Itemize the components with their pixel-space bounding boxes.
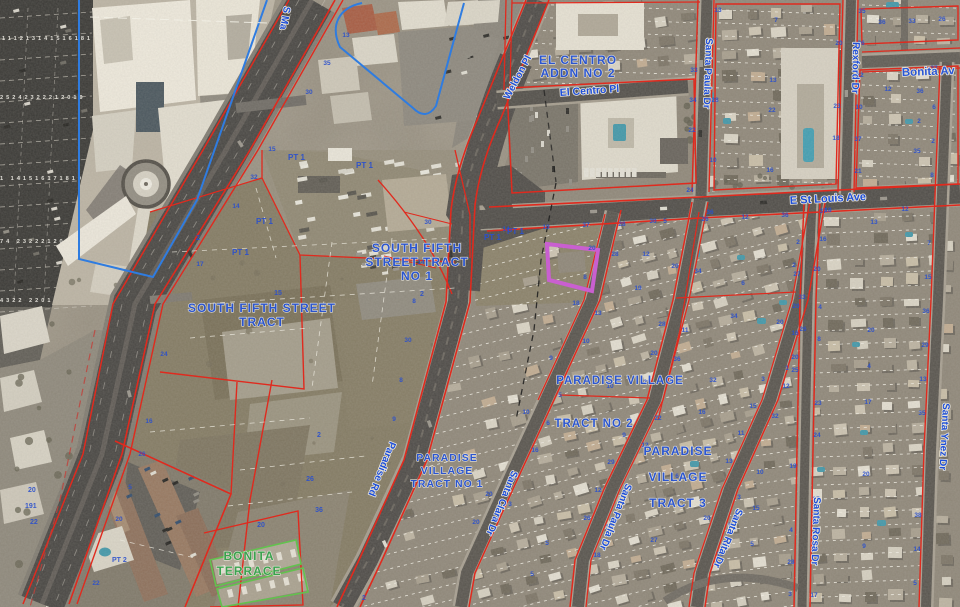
- svg-text:17: 17: [864, 399, 872, 406]
- svg-text:20: 20: [257, 522, 265, 529]
- svg-text:8: 8: [399, 377, 403, 384]
- svg-text:30: 30: [424, 219, 432, 226]
- svg-text:20: 20: [485, 491, 493, 498]
- svg-text:10: 10: [522, 409, 530, 416]
- svg-text:30: 30: [404, 337, 412, 344]
- svg-text:5: 5: [530, 571, 534, 578]
- svg-text:29: 29: [607, 459, 615, 466]
- svg-text:16: 16: [145, 418, 153, 425]
- svg-text:PT 2: PT 2: [112, 557, 127, 564]
- svg-text:15: 15: [752, 505, 760, 512]
- svg-text:SOUTH FIFTH: SOUTH FIFTH: [372, 241, 462, 255]
- svg-text:12: 12: [901, 206, 909, 213]
- svg-text:PT 1: PT 1: [288, 153, 305, 162]
- svg-text:38: 38: [914, 512, 922, 519]
- svg-text:5: 5: [545, 540, 549, 547]
- svg-text:34: 34: [694, 268, 702, 275]
- svg-text:28: 28: [658, 321, 666, 328]
- svg-text:12: 12: [642, 251, 650, 258]
- svg-text:2: 2: [420, 291, 424, 298]
- svg-text:37: 37: [854, 136, 862, 143]
- svg-text:9: 9: [862, 543, 866, 550]
- svg-text:20: 20: [791, 354, 799, 361]
- svg-text:36: 36: [315, 507, 323, 514]
- svg-text:37: 37: [582, 222, 590, 229]
- svg-text:9: 9: [549, 355, 553, 362]
- svg-text:PT 1: PT 1: [256, 217, 273, 226]
- svg-text:Rexford Dr: Rexford Dr: [849, 42, 861, 94]
- svg-text:25: 25: [791, 367, 799, 374]
- svg-text:22: 22: [92, 580, 100, 587]
- svg-text:10: 10: [855, 104, 863, 111]
- svg-text:20: 20: [472, 519, 480, 526]
- svg-text:17: 17: [810, 592, 818, 599]
- svg-text:9: 9: [392, 416, 396, 423]
- svg-text:5: 5: [128, 484, 132, 491]
- svg-text:20: 20: [813, 266, 821, 273]
- svg-text:20: 20: [588, 245, 596, 252]
- svg-text:8: 8: [583, 274, 587, 281]
- svg-text:24: 24: [813, 432, 821, 439]
- svg-text:15: 15: [924, 274, 932, 281]
- svg-text:BONITA: BONITA: [223, 549, 274, 563]
- svg-text:29: 29: [921, 342, 929, 349]
- svg-text:18: 18: [572, 300, 580, 307]
- svg-text:28: 28: [611, 251, 619, 258]
- svg-text:2: 2: [317, 432, 321, 439]
- svg-text:10: 10: [709, 157, 717, 164]
- svg-text:STREET TRACT: STREET TRACT: [365, 255, 468, 269]
- svg-text:20: 20: [28, 487, 36, 494]
- svg-text:26: 26: [583, 515, 591, 522]
- svg-text:26: 26: [701, 216, 709, 223]
- svg-text:7: 7: [927, 240, 931, 247]
- svg-text:SOUTH FIFTH STREET: SOUTH FIFTH STREET: [188, 301, 336, 315]
- svg-text:ADDN NO 2: ADDN NO 2: [540, 66, 615, 80]
- svg-text:2: 2: [792, 262, 796, 269]
- svg-text:22: 22: [768, 107, 776, 114]
- svg-text:16: 16: [819, 236, 827, 243]
- svg-text:12: 12: [741, 214, 749, 221]
- svg-text:26: 26: [138, 451, 146, 458]
- svg-text:26: 26: [306, 476, 314, 483]
- svg-text:17: 17: [196, 261, 204, 268]
- svg-text:34: 34: [730, 313, 738, 320]
- svg-text:2: 2: [796, 239, 800, 246]
- svg-text:22: 22: [654, 415, 662, 422]
- svg-text:3: 3: [761, 376, 765, 383]
- svg-text:12: 12: [594, 487, 602, 494]
- svg-text:15: 15: [749, 403, 757, 410]
- svg-text:13: 13: [594, 310, 602, 317]
- svg-text:22: 22: [688, 127, 696, 134]
- svg-text:36: 36: [922, 308, 930, 315]
- svg-text:11: 11: [682, 327, 689, 334]
- svg-text:28: 28: [787, 559, 795, 566]
- svg-text:20: 20: [671, 263, 679, 270]
- svg-text:12: 12: [782, 383, 790, 390]
- svg-text:21: 21: [854, 168, 862, 175]
- svg-text:18: 18: [832, 135, 840, 142]
- svg-text:37: 37: [819, 208, 827, 215]
- svg-text:20: 20: [776, 319, 784, 326]
- svg-text:20: 20: [115, 516, 123, 523]
- svg-text:12: 12: [884, 86, 892, 93]
- svg-text:19: 19: [634, 285, 642, 292]
- svg-text:TRACT 3: TRACT 3: [649, 496, 707, 510]
- svg-text:VILLAGE: VILLAGE: [421, 465, 474, 477]
- svg-text:26: 26: [799, 326, 807, 333]
- svg-text:6: 6: [741, 280, 745, 287]
- svg-text:35: 35: [918, 410, 926, 417]
- svg-text:33: 33: [798, 294, 806, 301]
- svg-text:20: 20: [792, 303, 800, 310]
- svg-text:9: 9: [622, 432, 626, 439]
- svg-text:13: 13: [919, 376, 927, 383]
- svg-text:30: 30: [305, 89, 313, 96]
- svg-text:PT 1: PT 1: [507, 227, 524, 236]
- svg-text:27: 27: [650, 537, 658, 544]
- svg-text:3: 3: [788, 591, 792, 598]
- svg-text:5: 5: [913, 580, 917, 587]
- svg-text:13: 13: [342, 32, 350, 39]
- svg-text:15: 15: [268, 146, 276, 153]
- svg-text:23: 23: [814, 400, 822, 407]
- svg-text:7: 7: [774, 17, 778, 24]
- svg-text:TRACT NO 1: TRACT NO 1: [411, 478, 484, 490]
- svg-text:35: 35: [323, 60, 331, 67]
- svg-text:16: 16: [531, 447, 539, 454]
- svg-text:36: 36: [916, 88, 924, 95]
- svg-text:36: 36: [673, 356, 681, 363]
- svg-text:PARADISE: PARADISE: [643, 444, 712, 458]
- svg-text:33: 33: [690, 67, 698, 74]
- svg-text:32: 32: [250, 174, 258, 181]
- svg-text:2: 2: [917, 118, 921, 125]
- svg-text:TRACT: TRACT: [239, 315, 285, 329]
- svg-text:10: 10: [582, 338, 590, 345]
- svg-text:11: 11: [738, 430, 745, 437]
- svg-text:35: 35: [913, 148, 921, 155]
- svg-text:24: 24: [160, 351, 168, 358]
- svg-text:PT 1: PT 1: [356, 161, 373, 170]
- svg-text:5: 5: [558, 392, 562, 399]
- svg-text:13: 13: [769, 77, 777, 84]
- svg-text:PT 1: PT 1: [232, 248, 249, 257]
- svg-text:20: 20: [703, 515, 711, 522]
- svg-text:4: 4: [818, 304, 822, 311]
- svg-text:10: 10: [756, 469, 764, 476]
- svg-text:36: 36: [781, 212, 789, 219]
- svg-text:20: 20: [862, 471, 870, 478]
- svg-text:8: 8: [412, 298, 416, 305]
- svg-text:15: 15: [274, 290, 282, 297]
- svg-text:TERRACE: TERRACE: [216, 564, 281, 578]
- svg-text:VILLAGE: VILLAGE: [648, 470, 707, 484]
- svg-text:PARADISE VILLAGE: PARADISE VILLAGE: [556, 375, 684, 387]
- svg-text:28: 28: [618, 221, 626, 228]
- svg-text:PARADISE: PARADISE: [416, 452, 477, 464]
- svg-text:6: 6: [546, 420, 550, 427]
- svg-text:16: 16: [698, 409, 706, 416]
- svg-text:6: 6: [932, 104, 936, 111]
- svg-text:2: 2: [196, 235, 200, 242]
- svg-text:20: 20: [867, 327, 875, 334]
- svg-text:34: 34: [689, 97, 697, 104]
- svg-text:13: 13: [870, 219, 878, 226]
- svg-text:8: 8: [817, 336, 821, 343]
- svg-text:36: 36: [878, 19, 886, 26]
- svg-text:20: 20: [650, 350, 658, 357]
- svg-text:PT 1: PT 1: [484, 233, 501, 242]
- svg-text:26: 26: [938, 16, 946, 23]
- svg-text:TRACT NO 2: TRACT NO 2: [555, 418, 634, 430]
- svg-text:19: 19: [542, 224, 550, 231]
- svg-text:2: 2: [931, 138, 935, 145]
- svg-text:4: 4: [867, 363, 871, 370]
- svg-text:191: 191: [25, 503, 37, 510]
- svg-text:36: 36: [706, 209, 714, 216]
- svg-text:33: 33: [908, 18, 916, 25]
- svg-text:14: 14: [913, 546, 921, 553]
- svg-text:14: 14: [232, 203, 240, 210]
- svg-text:4: 4: [789, 527, 793, 534]
- svg-text:2: 2: [362, 595, 366, 602]
- svg-text:3: 3: [508, 501, 512, 508]
- svg-text:NO 1: NO 1: [401, 269, 433, 283]
- svg-text:24: 24: [686, 187, 694, 194]
- svg-text:18: 18: [593, 552, 601, 559]
- svg-text:13: 13: [725, 458, 733, 465]
- svg-text:32: 32: [771, 413, 779, 420]
- svg-text:35: 35: [858, 8, 866, 15]
- svg-text:16: 16: [791, 330, 799, 337]
- svg-text:32: 32: [709, 377, 717, 384]
- svg-text:23: 23: [833, 103, 841, 110]
- svg-text:22: 22: [30, 519, 38, 526]
- svg-text:5: 5: [663, 218, 667, 225]
- svg-text:27: 27: [793, 271, 801, 278]
- svg-text:Bonita Av: Bonita Av: [902, 65, 956, 79]
- svg-text:5: 5: [750, 541, 754, 548]
- svg-text:19: 19: [789, 463, 797, 470]
- svg-text:20: 20: [835, 40, 843, 47]
- svg-text:16: 16: [766, 167, 774, 174]
- svg-text:13: 13: [714, 7, 722, 14]
- svg-text:1: 1: [785, 365, 789, 372]
- svg-text:30: 30: [649, 218, 657, 225]
- svg-text:EL CENTRO: EL CENTRO: [539, 53, 617, 67]
- svg-text:3: 3: [737, 494, 741, 501]
- svg-text:8: 8: [930, 172, 934, 179]
